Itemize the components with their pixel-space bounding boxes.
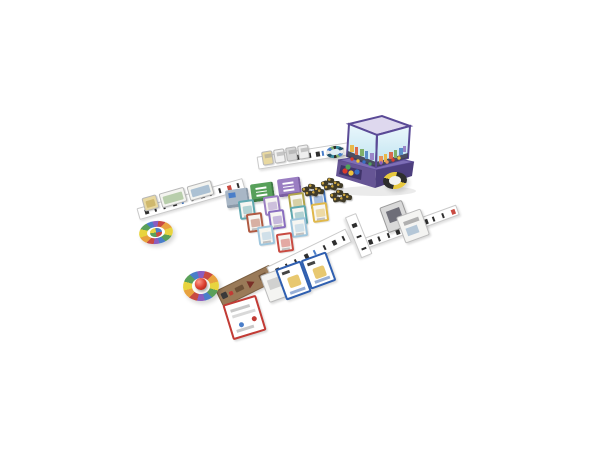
deck-lines-icon bbox=[283, 185, 294, 188]
market-card-art bbox=[281, 238, 291, 247]
market-card[interactable] bbox=[276, 232, 294, 253]
card-art-figure bbox=[287, 274, 302, 288]
strip-icon bbox=[351, 223, 357, 229]
strip-icon bbox=[450, 208, 455, 214]
mini-card-art bbox=[288, 149, 296, 154]
strip-marker bbox=[220, 291, 228, 299]
disc-center bbox=[330, 148, 340, 155]
strip-icon bbox=[322, 245, 326, 250]
card-art bbox=[405, 225, 419, 237]
strip-icon bbox=[321, 150, 324, 155]
market-card-text-lines bbox=[317, 217, 325, 220]
market-card-art bbox=[316, 208, 326, 217]
strip-icon bbox=[356, 235, 361, 239]
strip-icon bbox=[236, 183, 239, 188]
mini-card-art bbox=[300, 147, 308, 152]
card-icon bbox=[307, 261, 316, 267]
tabletop-scene bbox=[0, 0, 600, 450]
player-disc-marble[interactable] bbox=[182, 269, 220, 302]
deck-label bbox=[228, 192, 236, 198]
card-icon bbox=[282, 270, 291, 276]
strip-mini-card[interactable] bbox=[261, 150, 274, 166]
market-card-text-lines bbox=[263, 240, 271, 243]
market-card-art bbox=[262, 231, 272, 240]
landscape-card-art bbox=[145, 199, 156, 208]
strip-mini-card[interactable] bbox=[297, 144, 310, 160]
player-disc-wheel[interactable] bbox=[138, 219, 175, 247]
deck-lines-icon bbox=[283, 188, 294, 191]
strip-icon bbox=[432, 216, 436, 221]
strip-icon bbox=[332, 239, 338, 245]
landscape-card-art bbox=[162, 191, 183, 204]
card-art-dot bbox=[251, 316, 257, 322]
market-card[interactable] bbox=[311, 202, 329, 223]
strip-mini-card[interactable] bbox=[273, 148, 286, 164]
market-card-text-lines bbox=[282, 247, 290, 250]
market-card[interactable] bbox=[257, 225, 275, 246]
strip-icon bbox=[218, 188, 221, 193]
deck-lines-icon bbox=[256, 190, 267, 193]
market-card[interactable] bbox=[290, 217, 308, 238]
market-card-text-lines bbox=[296, 232, 304, 235]
strip-mini-card[interactable] bbox=[285, 146, 298, 162]
market-card-text-lines bbox=[274, 224, 282, 227]
deck-lines-icon bbox=[282, 181, 293, 184]
market-card-art bbox=[295, 223, 305, 232]
market-card-art bbox=[273, 215, 283, 224]
strip-icon bbox=[315, 151, 320, 157]
strip-marker bbox=[234, 284, 244, 292]
strip-icon bbox=[341, 235, 345, 240]
mini-card-art bbox=[276, 151, 284, 156]
strip-icon bbox=[441, 212, 445, 217]
deck-lines-icon bbox=[255, 186, 266, 189]
landscape-card-art bbox=[190, 185, 210, 198]
arrow-icon bbox=[246, 278, 256, 288]
disc-center bbox=[388, 175, 401, 185]
strip-icon bbox=[377, 236, 381, 241]
mini-card-art bbox=[264, 153, 272, 158]
strip-marker bbox=[228, 291, 233, 296]
strip-icon bbox=[386, 232, 390, 237]
strip-icon bbox=[361, 247, 366, 251]
ball-dispenser-tower[interactable] bbox=[330, 110, 422, 198]
